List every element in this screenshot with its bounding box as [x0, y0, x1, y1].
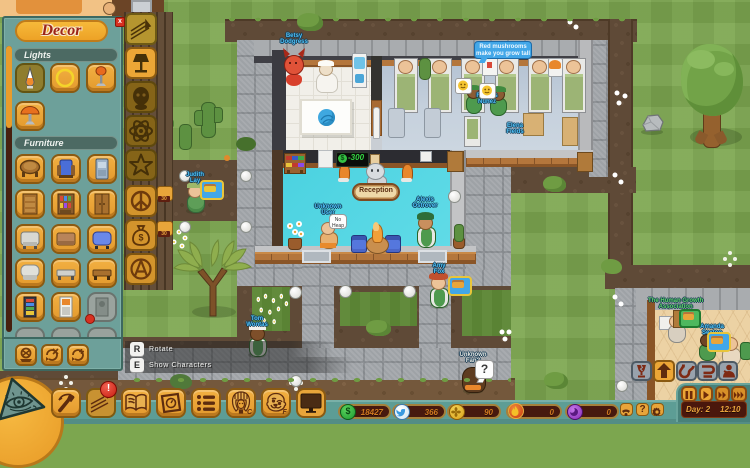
svg-text:C: C [247, 409, 253, 416]
svg-text:$: $ [138, 233, 143, 243]
svg-text:F: F [283, 409, 288, 416]
